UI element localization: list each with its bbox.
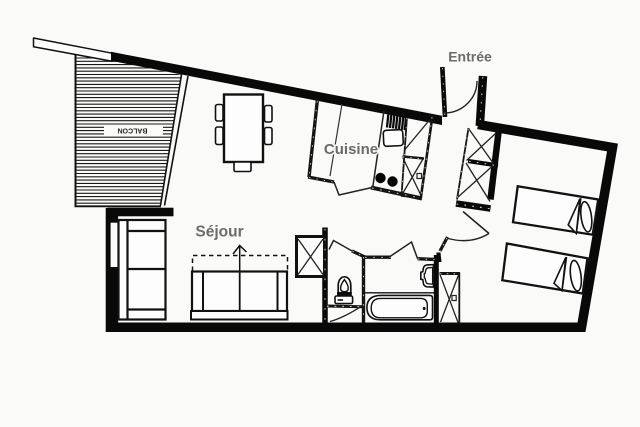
svg-text:Entrée: Entrée bbox=[448, 49, 492, 65]
svg-text:Cuisine: Cuisine bbox=[324, 141, 378, 158]
svg-text:Séjour: Séjour bbox=[195, 224, 243, 241]
svg-text:BALCON: BALCON bbox=[118, 127, 148, 134]
